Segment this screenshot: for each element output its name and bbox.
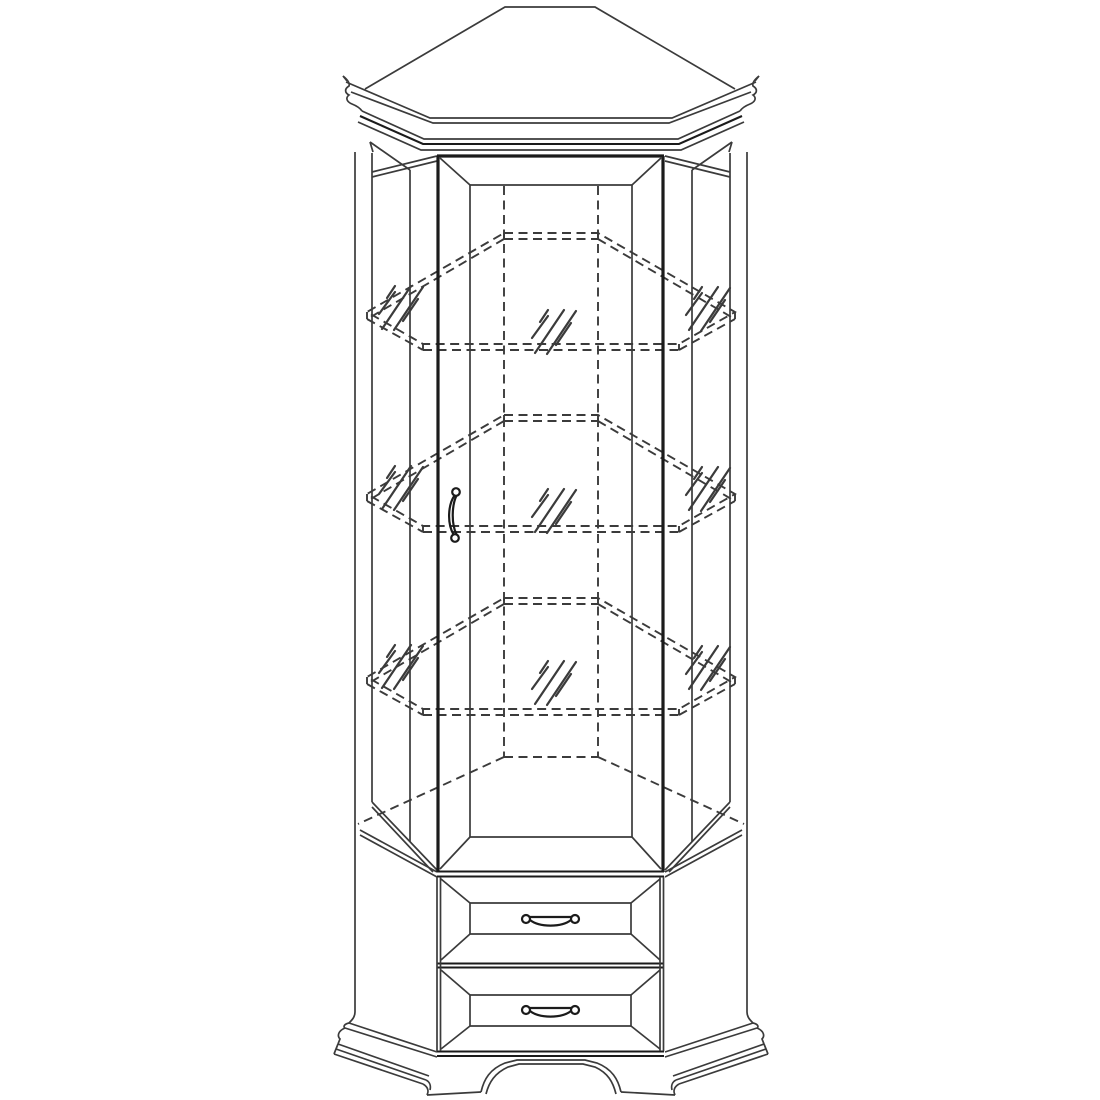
shelf-2 xyxy=(367,415,735,532)
drawer-top xyxy=(441,879,660,960)
apron-arch xyxy=(481,1060,621,1094)
front-rails xyxy=(437,872,664,1057)
drawer-handle xyxy=(522,1006,579,1017)
base-plinth xyxy=(334,1023,768,1095)
side-panel-left xyxy=(349,142,437,1023)
cabinet-interior xyxy=(358,186,744,824)
side-panel-right xyxy=(665,142,753,1023)
crown-molding xyxy=(343,76,759,150)
door-handle xyxy=(449,488,460,542)
back-corner-lines xyxy=(504,186,598,757)
crown-ogee-left xyxy=(343,76,362,111)
top-panel xyxy=(365,7,735,89)
glass-door xyxy=(437,156,664,872)
interior-floor-lines xyxy=(358,757,744,824)
drawer-handle xyxy=(522,915,579,926)
shelf-1 xyxy=(367,233,735,350)
corner-cabinet-line-drawing: tall corner display cabinet xyxy=(0,0,1100,1100)
crown-ogee-right xyxy=(740,76,759,111)
base-side-right xyxy=(621,1023,768,1095)
cabinet-drawing-canvas: tall corner display cabinet xyxy=(0,0,1100,1100)
drawer-bottom xyxy=(441,970,660,1049)
glass-reflection-marks xyxy=(379,286,730,705)
